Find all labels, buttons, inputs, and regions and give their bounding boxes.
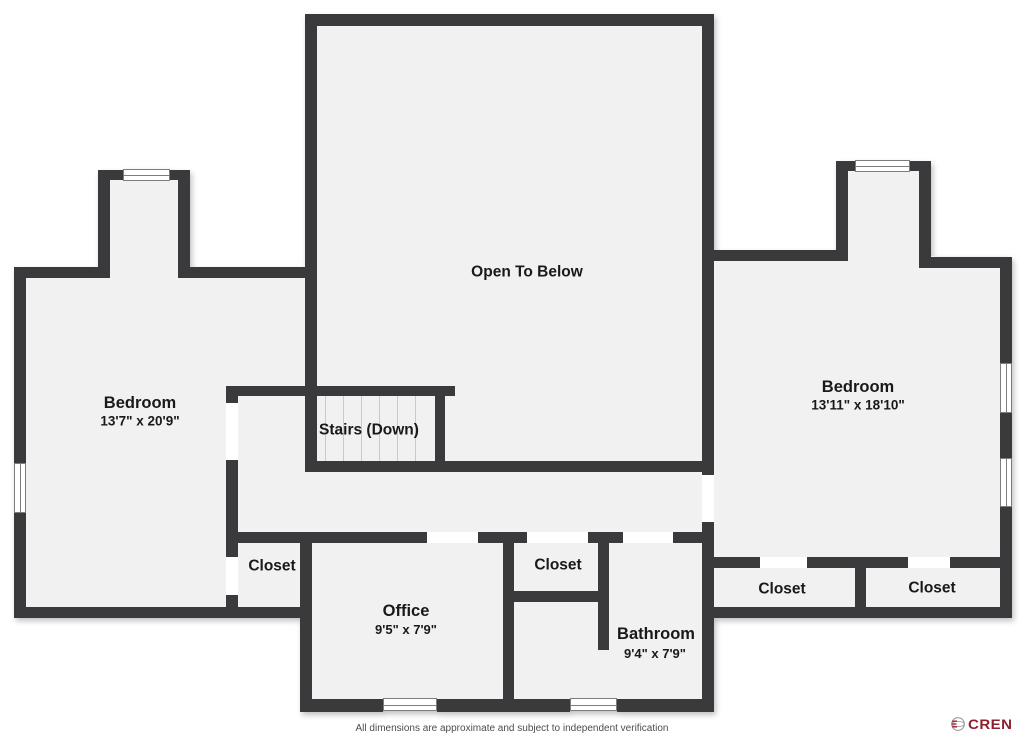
dims-bathroom: 9'4" x 7'9" xyxy=(624,647,686,661)
wall-segment xyxy=(14,267,110,278)
label-closet-right-2: Closet xyxy=(908,579,955,596)
wall-segment xyxy=(178,267,317,278)
window xyxy=(570,698,617,711)
door-opening xyxy=(760,557,807,568)
wall-segment xyxy=(919,257,1012,268)
wall-segment xyxy=(300,699,383,712)
label-bathroom: Bathroom xyxy=(617,625,695,643)
room-floor xyxy=(232,467,708,538)
window-mullion xyxy=(384,705,436,706)
wall-segment xyxy=(836,161,855,171)
window-mullion xyxy=(1006,459,1007,506)
door-opening xyxy=(908,557,950,568)
wall-segment xyxy=(226,532,427,543)
window-mullion xyxy=(124,175,169,176)
room-floor xyxy=(842,166,925,261)
wall-segment xyxy=(14,607,310,618)
wall-segment xyxy=(437,699,570,712)
wall-segment xyxy=(226,595,238,618)
door-opening xyxy=(623,532,673,543)
disclaimer-text: All dimensions are approximate and subje… xyxy=(0,723,1024,734)
wall-segment xyxy=(226,386,238,403)
wall-segment xyxy=(919,161,931,268)
room-floor xyxy=(232,392,311,468)
window xyxy=(855,160,910,172)
floor-plan: Open To Below Bedroom 13'7" x 20'9" Stai… xyxy=(0,0,1024,739)
wall-segment xyxy=(14,267,26,463)
label-office: Office xyxy=(383,602,430,620)
label-open-to-below: Open To Below xyxy=(471,263,583,280)
floor-plan-page: Open To Below Bedroom 13'7" x 20'9" Stai… xyxy=(0,0,1024,739)
cren-logo: CREN xyxy=(950,714,1013,734)
dims-bedroom-left: 13'7" x 20'9" xyxy=(100,415,179,430)
door-opening xyxy=(226,557,238,595)
wall-segment xyxy=(98,170,110,278)
wall-segment xyxy=(178,170,190,278)
window xyxy=(123,169,170,181)
window xyxy=(383,698,437,711)
wall-segment xyxy=(305,14,317,396)
wall-segment xyxy=(702,607,1012,618)
label-bedroom-left: Bedroom xyxy=(104,394,176,412)
wall-segment xyxy=(305,396,317,466)
dims-office: 9'5" x 7'9" xyxy=(375,623,437,637)
label-stairs: Stairs (Down) xyxy=(319,421,419,438)
wall-segment xyxy=(617,699,714,712)
wall-segment xyxy=(702,250,848,261)
label-closet-middle: Closet xyxy=(534,556,581,573)
door-opening xyxy=(427,532,478,543)
door-opening xyxy=(702,475,714,522)
window-mullion xyxy=(571,705,616,706)
wall-segment xyxy=(836,161,848,261)
wall-segment xyxy=(950,557,1012,568)
wall-segment xyxy=(1000,257,1012,363)
wall-segment xyxy=(503,591,609,602)
cren-globe-icon xyxy=(950,716,966,732)
label-closet-right-1: Closet xyxy=(758,580,805,597)
window xyxy=(1000,363,1012,413)
window xyxy=(14,463,26,513)
cren-logo-text: CREN xyxy=(968,716,1013,732)
room-floor xyxy=(232,538,306,613)
wall-segment xyxy=(435,386,445,471)
label-bedroom-right: Bedroom xyxy=(822,378,894,396)
wall-segment xyxy=(702,14,714,475)
window-mullion xyxy=(1006,364,1007,412)
door-opening xyxy=(226,403,238,460)
room-floor xyxy=(104,175,184,275)
dims-bedroom-right: 13'11" x 18'10" xyxy=(811,399,905,414)
window-mullion xyxy=(856,166,909,167)
wall-segment xyxy=(305,14,714,26)
window-mullion xyxy=(20,464,21,512)
door-opening xyxy=(527,532,588,543)
window xyxy=(1000,458,1012,507)
wall-segment xyxy=(305,461,714,472)
label-closet-left: Closet xyxy=(248,557,295,574)
wall-segment xyxy=(14,513,26,618)
wall-segment xyxy=(226,386,455,396)
wall-segment xyxy=(98,170,123,180)
wall-segment xyxy=(503,532,514,712)
wall-segment xyxy=(1000,413,1012,458)
wall-segment xyxy=(702,557,760,568)
wall-segment xyxy=(300,532,312,712)
